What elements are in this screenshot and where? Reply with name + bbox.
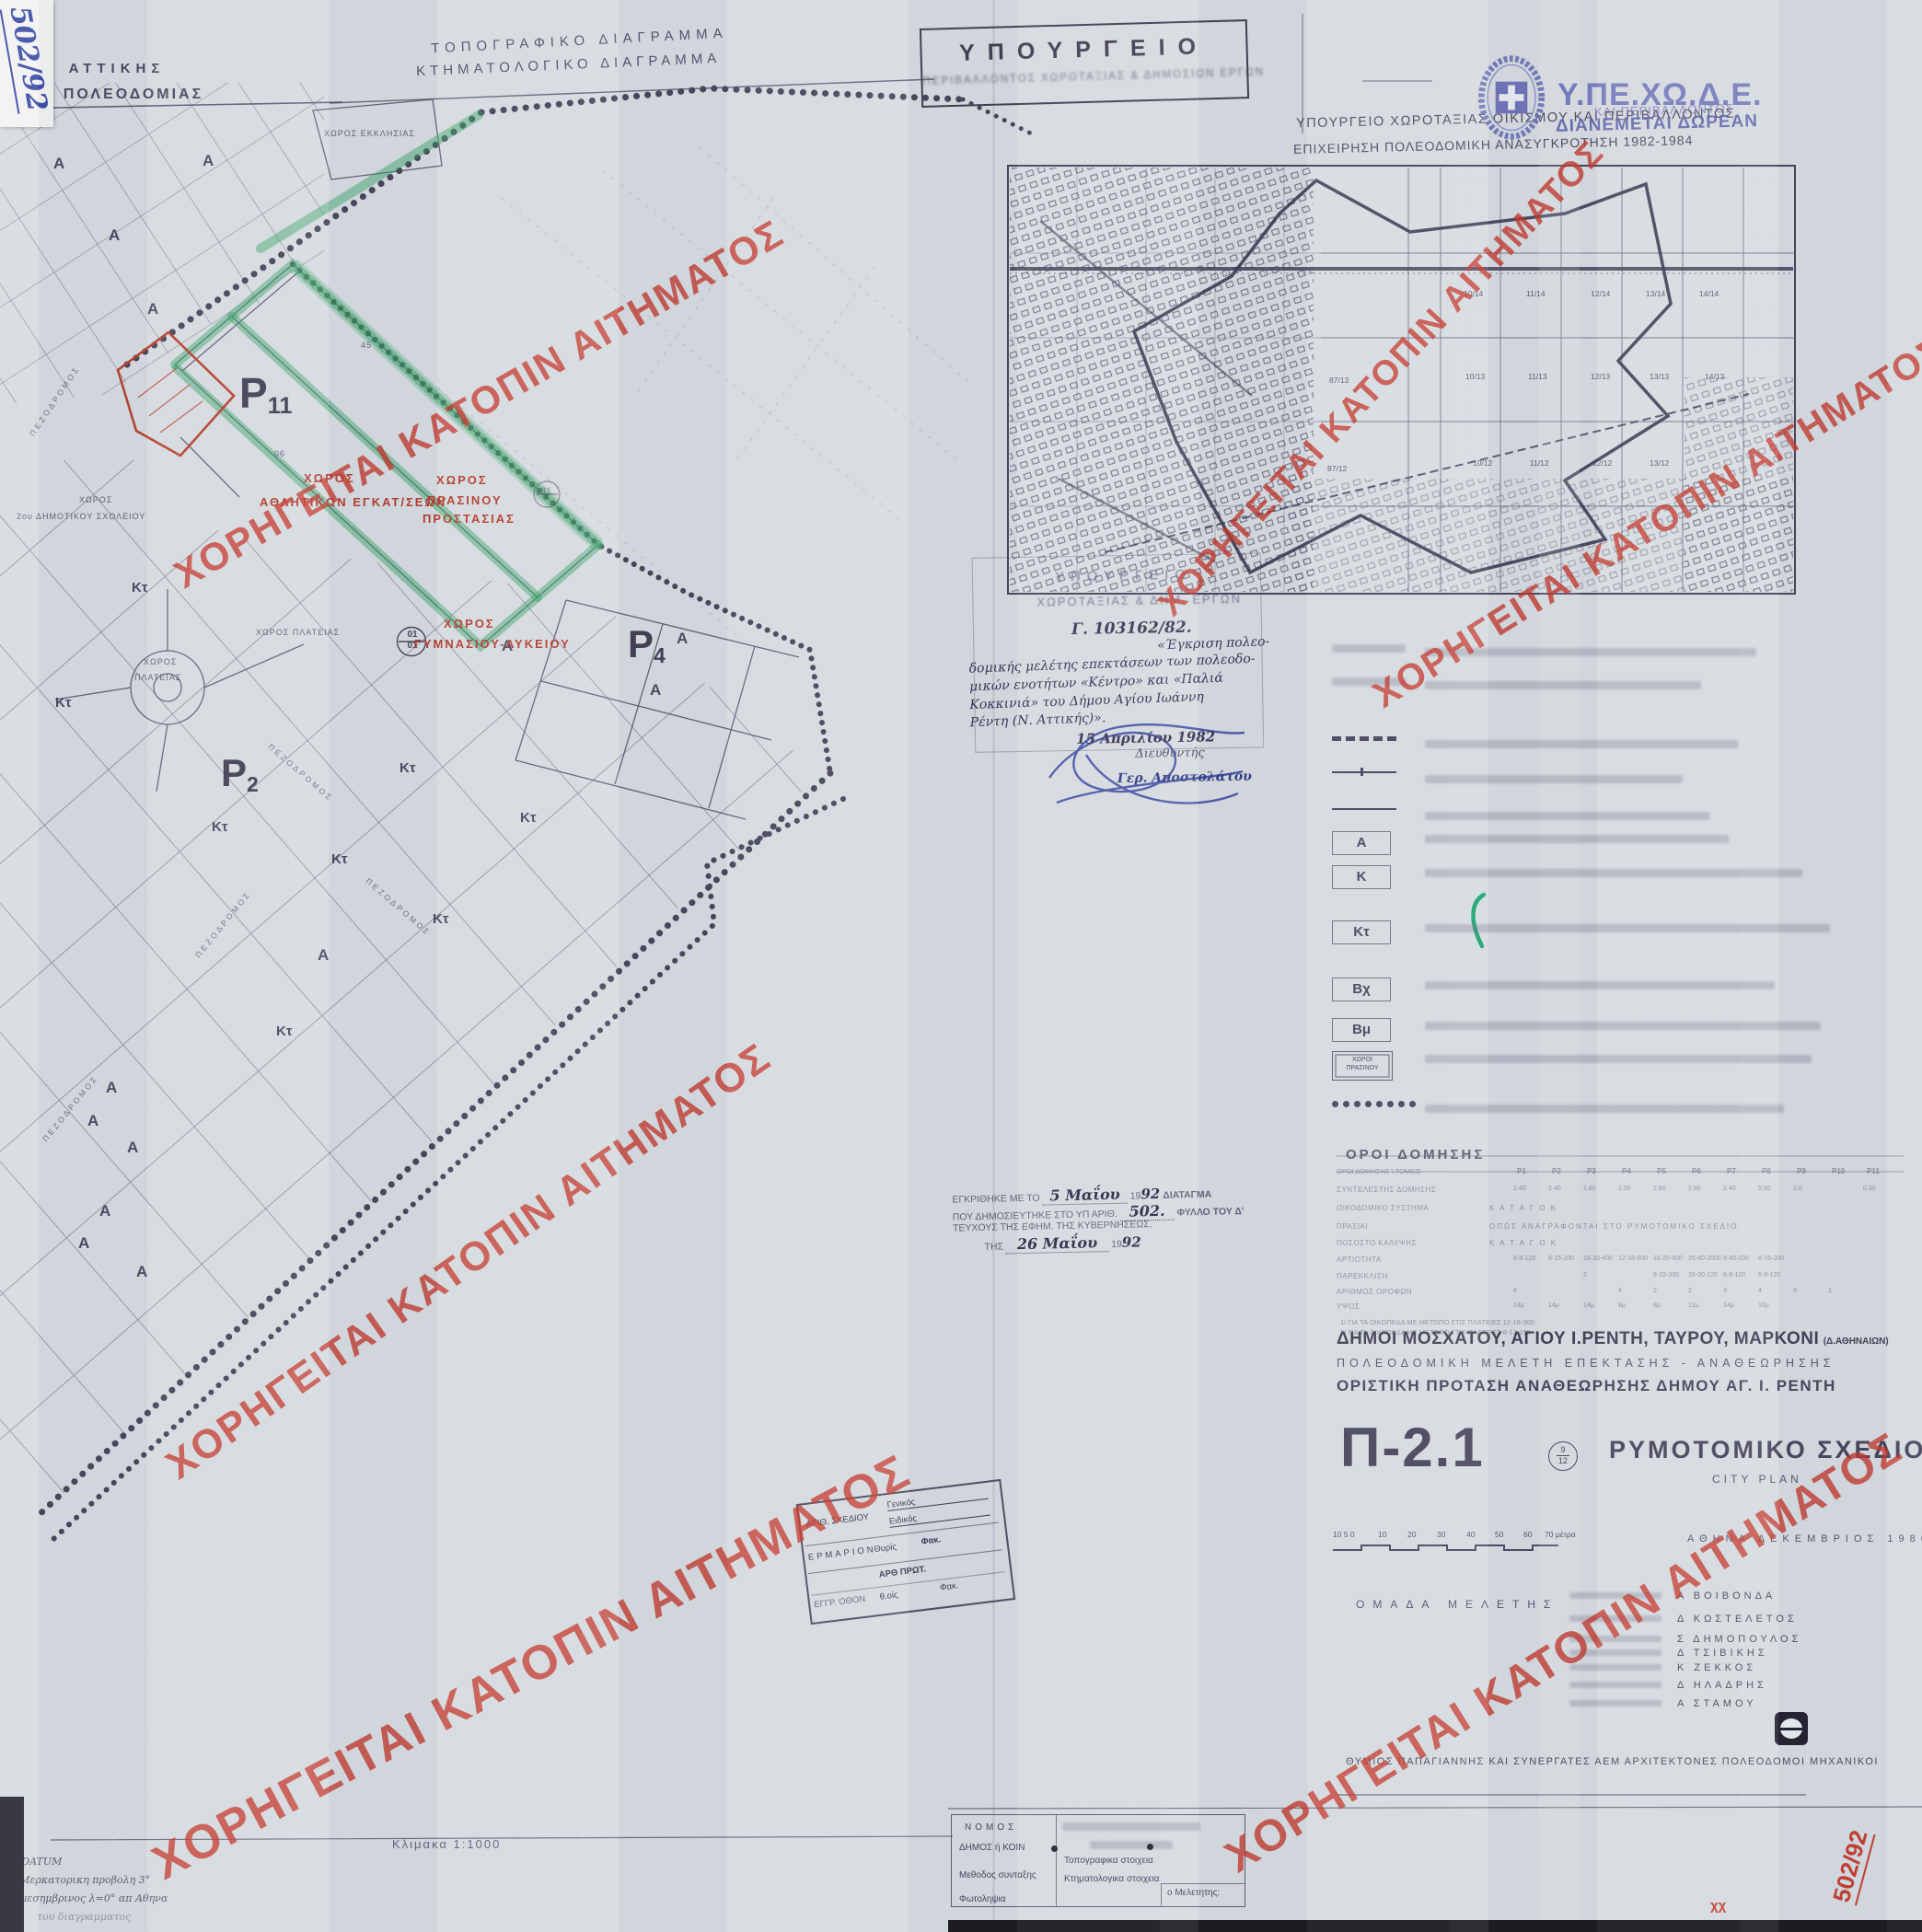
file-number: 502/92 — [0, 4, 53, 114]
legend-symbol-faint — [1332, 644, 1406, 653]
street-grid-southwest — [0, 460, 822, 1517]
gazette-hw-day2: 26 Μαΐου — [1006, 1233, 1109, 1254]
agency-abbrev: Υ.ΠΕ.ΧΩ.Δ.Ε. — [1557, 77, 1762, 113]
firm-logo-icon — [1775, 1712, 1808, 1745]
building-terms-cell: 14μ — [1548, 1302, 1559, 1309]
building-terms-cell: Ρ3 — [1587, 1167, 1596, 1175]
gazette-pre1: ΕΓΚΡΙΘΗΚΕ ΜΕ ΤΟ — [952, 1193, 1039, 1206]
inset-grid-label: 13/12 — [1650, 458, 1669, 468]
map-zone-label: Ρ2 — [221, 751, 259, 795]
sheet-number-top: 9 — [1557, 1446, 1569, 1456]
building-terms-cell: Ρ9 — [1797, 1167, 1806, 1175]
building-terms-cell: 6-8-120 — [1758, 1272, 1780, 1278]
team-member-name: Σ ΔΗΜΟΠΟΥΛΟΣ — [1677, 1634, 1801, 1645]
left-black-edge — [0, 1797, 24, 1932]
building-terms-cell: ΑΡΤΙΟΤΗΤΑ — [1337, 1255, 1382, 1264]
inset-grid-label: 10/13 — [1465, 372, 1485, 381]
scale-tick-label: 60 — [1523, 1530, 1532, 1539]
building-terms-cell: 8μ — [1653, 1302, 1661, 1309]
legend-dash-symbol — [1373, 736, 1383, 741]
legend-dot-symbol — [1409, 1101, 1416, 1107]
building-terms-cell: ΠΟΣΟΣΤΟ ΚΑΛΥΨΗΣ — [1337, 1239, 1417, 1247]
inset-grid-label: 13/14 — [1646, 289, 1665, 298]
scale-tick-label: 70 μέτρα — [1545, 1530, 1576, 1539]
approval-note-stamp: ΥΠΟΥΡΓΕΙΟ ΧΩΡΟΤΑΞΙΑΣ & ΔΗΜ. ΕΡΓΩΝ Γ. 103… — [964, 545, 1281, 822]
building-terms-cell: 2 — [1583, 1272, 1587, 1278]
legend-dash-symbol — [1387, 736, 1396, 741]
building-terms-cell: 6-8-120 — [1723, 1272, 1745, 1278]
red-check-mark: χχ — [1710, 1898, 1726, 1914]
info-dimos: ΔΗΜΟΣ ή ΚΟΙΝ — [959, 1843, 1025, 1853]
legend-line-symbol — [1332, 808, 1396, 810]
legend-description-faint — [1425, 924, 1830, 932]
legend-description-faint — [1425, 1105, 1784, 1113]
building-terms-cell: 16-20-120 — [1688, 1272, 1718, 1278]
building-terms-cell: 3 — [1723, 1288, 1727, 1294]
archive-r2a: Θυρίς — [874, 1542, 897, 1555]
gazette-cent4: 19 — [1111, 1239, 1122, 1250]
scale-tick-label: 10 5 0 — [1333, 1530, 1355, 1539]
map-block-letter: Κτ — [331, 851, 348, 867]
team-title: ΟΜΑΔΑ ΜΕΛΕΤΗΣ — [1356, 1598, 1558, 1611]
archive-r3: ΑΡΘ ΠΡΩΤ. — [878, 1565, 926, 1580]
info-meletitis: ο Μελετητης: — [1167, 1888, 1220, 1898]
map-block-letter: Α — [106, 1079, 117, 1097]
building-terms-cell: 8μ — [1618, 1302, 1626, 1309]
info-ktima: Κτηματολογικα στοιχεια — [1064, 1874, 1159, 1884]
building-terms-cell: 1.80 — [1583, 1186, 1596, 1192]
inset-grid-label: 10/12 — [1473, 458, 1492, 468]
legend-dot-symbol — [1376, 1101, 1383, 1107]
legend-dash-symbol — [1360, 736, 1369, 741]
building-terms-cell: 1.20 — [1618, 1186, 1631, 1192]
ministry-stamp-box: ΥΠΟΥΡΓΕΙΟ ΠΕΡΙΒΑΛΛΟΝΤΟΣ ΧΩΡΟΤΑΞΙΑΣ & ΔΗΜ… — [920, 19, 1249, 108]
scale-tick-label: 30 — [1437, 1530, 1445, 1539]
map-area-label: ΧΩΡΟΣ ΕΚΚΛΗΣΙΑΣ — [324, 129, 415, 138]
legend-description-faint — [1425, 740, 1738, 748]
building-terms-cell: 2.80 — [1653, 1186, 1666, 1192]
legend-box-symbol: Βχ — [1332, 978, 1391, 1001]
signer-name: Γερ. Αποστολάτου — [1117, 769, 1252, 787]
map-area-label: 06 — [274, 449, 285, 458]
building-terms-cell: ΣΥΝΤΕΛΕΣΤΗΣ ΔΟΜΗΣΗΣ — [1337, 1186, 1436, 1194]
legend-tick-symbol — [1332, 771, 1396, 773]
legend-dash-symbol — [1332, 736, 1341, 741]
map-area-label: ΧΩΡΟΣ — [79, 495, 112, 504]
map-red-label: ΓΥΜΝΑΣΙΟΥ-ΛΥΚΕΙΟΥ — [414, 637, 571, 651]
info-nomos: ΝΟΜΟΣ — [965, 1822, 1017, 1833]
legend-dot-symbol — [1365, 1101, 1372, 1107]
gazette-post2: ΦΥΛΛΟ ΤΟΥ Δ' — [1176, 1206, 1244, 1219]
map-scale-note: Κλιμακα 1:1000 — [392, 1837, 501, 1851]
ministry-stamp-line2: ΠΕΡΙΒΑΛΛΟΝΤΟΣ ΧΩΡΟΤΑΞΙΑΣ & ΔΗΜΟΣΙΩΝ ΕΡΓΩ… — [922, 67, 1246, 87]
legend-dot-symbol — [1343, 1101, 1349, 1107]
building-terms-cell: ΟΙΚΟΔΟΜΙΚΟ ΣΥΣΤΗΜΑ — [1337, 1204, 1429, 1212]
building-terms-cell: ΟΠΩΣ ΑΝΑΓΡΑΦΟΝΤΑΙ ΣΤΟ ΡΥΜΟΤΟΜΙΚΟ ΣΧΕΔΙΟ — [1489, 1222, 1738, 1231]
inset-grid-label: 11/13 — [1528, 372, 1547, 381]
building-terms-cell: Ρ2 — [1552, 1167, 1561, 1175]
legend-description-faint — [1425, 775, 1683, 783]
building-terms-cell: 25-40-2000 — [1688, 1255, 1721, 1262]
legend-green-box-symbol: ΧΩΡΟΙΠΡΑΣΙΝΟΥ — [1332, 1051, 1393, 1081]
gazette-hw-yr2: 92 — [1122, 1233, 1141, 1250]
city-plan-sheet: 502/92 ΡΧΙΑ ΑΤΤΙΚΗΣ ΥΝΣΗ ΠΟΛΕΟΔΟΜΙΑΣ ΤΟΠ… — [0, 0, 1922, 1932]
legend-tick-symbol — [1360, 768, 1363, 776]
building-terms-cell: 0.30 — [1863, 1186, 1876, 1192]
building-terms-cell: 2.60 — [1688, 1186, 1701, 1192]
building-terms-cell: 10μ — [1758, 1302, 1769, 1309]
strike-line — [330, 79, 934, 103]
gazette-hw-yr1: 92 — [1140, 1186, 1160, 1202]
building-terms-cell: 1/ ΓΙΑ ΤΑ ΟΙΚΟΠΕΔΑ ΜΕ ΜΕΤΩΠΟ ΣΤΙΣ ΠΛΑΤΕΙ… — [1340, 1318, 1534, 1326]
archive-r2: ΕΡΜΑΡΙΟΝ — [807, 1544, 876, 1563]
map-red-label: ΧΩΡΟΣ — [436, 473, 488, 487]
building-terms-cell: Κ Α Τ Α Γ Ο Κ — [1489, 1239, 1557, 1247]
legend-box-symbol: Α — [1332, 831, 1391, 855]
building-terms-cell: ΟΡΟΙ ΔΟΜΗΣΗΣ \ ΤΟΜΕΙΣ — [1337, 1167, 1421, 1175]
building-terms-cell: Ρ11 — [1867, 1167, 1880, 1175]
building-terms-cell: 2 — [1688, 1288, 1692, 1294]
map-area-label: 2ου ΔΗΜΟΤΙΚΟΥ ΣΧΟΛΕΙΟΥ — [17, 512, 145, 521]
map-block-letter: Κτ — [55, 695, 72, 711]
info-topo: Τοπογραφικα στοιχεια — [1064, 1856, 1153, 1866]
inset-grid-label: 11/14 — [1526, 289, 1546, 298]
building-terms-cell: 14μ — [1583, 1302, 1594, 1309]
legend-box-symbol: Κτ — [1332, 920, 1391, 944]
map-linework — [0, 0, 1922, 1932]
info-methodos: Μεθοδος συνταξης — [959, 1870, 1036, 1880]
proposal-title: ΟΡΙΣΤΙΚΗ ΠΡΟΤΑΣΗ ΑΝΑΘΕΩΡΗΣΗΣ ΔΗΜΟΥ ΑΓ. Ι… — [1337, 1377, 1836, 1395]
building-terms-cell: 8-15-200 — [1653, 1272, 1679, 1278]
building-terms-cell: 5.80 — [1758, 1186, 1771, 1192]
sheet-number-circle: 9 12 — [1548, 1441, 1578, 1471]
info-foto: Φωτοληψια — [959, 1894, 1006, 1904]
map-block-letter: Α — [318, 946, 329, 965]
building-terms-cell: 6-8-120 — [1513, 1255, 1535, 1262]
bottom-black-bar — [948, 1920, 1922, 1932]
plot-circle-faint: 81 — [540, 486, 551, 497]
archive-r4a: θ.οίς — [879, 1590, 898, 1602]
building-terms-cell: Ρ10 — [1832, 1167, 1845, 1175]
map-block-letter: Κτ — [433, 911, 449, 927]
scale-tick-label: 40 — [1466, 1530, 1475, 1539]
map-zone-label-part: 2 — [247, 772, 259, 796]
building-terms-cell: 2.0 — [1793, 1186, 1802, 1192]
inset-grid-label: 12/13 — [1591, 372, 1610, 381]
team-member-name: Δ ΤΣΙΒΙΚΗΣ — [1677, 1648, 1768, 1659]
gazette-pre4: ΤΗΣ — [984, 1241, 1003, 1252]
map-block-letter: Α — [109, 226, 120, 245]
building-terms-cell: 8-15-200 — [1548, 1255, 1574, 1262]
building-terms-cell: 1 — [1828, 1288, 1832, 1294]
map-block-letter: Κτ — [276, 1024, 293, 1039]
sheet-code: Π-2.1 — [1340, 1416, 1485, 1479]
legend-dash-symbol — [1346, 736, 1355, 741]
building-terms-cell: Κ Α Τ Α Γ Ο Κ — [1489, 1204, 1557, 1212]
legend-green-box-text: ΧΩΡΟΙ — [1333, 1056, 1392, 1064]
building-terms-cell: 4 — [1618, 1288, 1622, 1294]
map-block-letter: Α — [677, 630, 688, 648]
legend-dot-symbol — [1398, 1101, 1405, 1107]
datum-note-line: ια Μερκατορικη προβολη 3° — [6, 1874, 150, 1886]
team-member-role-faint — [1569, 1700, 1661, 1706]
map-block-letter: Α — [136, 1263, 147, 1281]
legend-description-faint — [1425, 1055, 1812, 1063]
building-terms-cell: ΠΑΡΕΚΚΛΙΣΗ — [1337, 1272, 1388, 1280]
building-terms-cell: ΑΡΙΘΜΟΣ ΟΡΟΦΩΝ — [1337, 1288, 1412, 1296]
inset-grid-label: 11/12 — [1530, 458, 1549, 468]
protocol-number: Γ. 103162/82. — [1071, 619, 1192, 639]
legend-description-faint — [1425, 981, 1775, 989]
map-zone-label-part: Ρ — [239, 369, 268, 417]
team-member-role-faint — [1569, 1682, 1661, 1688]
map-area-label: 45 — [361, 341, 372, 350]
map-area-label: ΧΩΡΟΣ — [144, 657, 177, 666]
map-area-label: ΧΩΡΟΣ ΠΛΑΤΕΙΑΣ — [256, 628, 340, 637]
building-terms-cell: 8-15-200 — [1758, 1255, 1784, 1262]
legend-description-faint — [1425, 1022, 1821, 1030]
scale-bar — [1333, 1545, 1558, 1550]
map-block-letter: Α — [127, 1139, 138, 1157]
map-zone-label: Ρ4 — [628, 622, 666, 666]
legend-description-faint — [1425, 681, 1701, 689]
building-terms-cell: ΠΡΑΣΙΑΙ — [1337, 1222, 1368, 1231]
map-block-letter: Κτ — [212, 819, 228, 835]
building-terms-cell: Ρ8 — [1762, 1167, 1771, 1175]
gazette-line4: ΤΗΣ 26 Μαΐου 1992 — [984, 1232, 1141, 1254]
gazette-cent1: 19 — [1130, 1190, 1141, 1201]
map-red-label: ΠΡΟΣΤΑΣΙΑΣ — [423, 512, 515, 526]
legend-green-box-text: ΠΡΑΣΙΝΟΥ — [1333, 1064, 1392, 1072]
building-terms-cell: 14μ — [1513, 1302, 1524, 1309]
team-member-name: Δ ΚΩΣΤΕΛΕΤΟΣ — [1677, 1614, 1798, 1625]
map-area-label: ΠΛΑΤΕΙΑΣ — [134, 673, 181, 682]
inset-grid-label: 87/12 — [1327, 464, 1347, 473]
datum-note-line: του διαγραμματος — [37, 1911, 131, 1923]
coat-of-arms-icon — [1471, 52, 1552, 144]
inset-grid-label: 13/13 — [1650, 372, 1669, 381]
map-block-letter: Α — [650, 681, 661, 700]
archive-r4b: Φακ. — [939, 1580, 959, 1592]
building-terms-cell: 2.40 — [1548, 1186, 1561, 1192]
building-terms-cell: 14μ — [1723, 1302, 1734, 1309]
ministry-stamp-line1: ΥΠΟΥΡΓΕΙΟ — [921, 32, 1246, 68]
building-terms-cell: 11μ — [1688, 1302, 1698, 1309]
map-zone-label: Ρ11 — [239, 368, 292, 418]
team-member-name: Α ΣΤΑΜΟΥ — [1677, 1698, 1757, 1709]
map-zone-label-part: Ρ — [628, 622, 654, 665]
map-block-letter: Α — [53, 155, 64, 173]
building-terms-cell: 12-18-600 — [1618, 1255, 1648, 1262]
map-block-letter: Α — [99, 1202, 110, 1221]
team-member-name: Κ ΖΕΚΚΟΣ — [1677, 1662, 1756, 1673]
corner-file-card: 502/92 — [0, 0, 53, 127]
map-block-letter: Α — [78, 1234, 89, 1253]
building-terms-cell: 2/ ΓΙΑ ΤΑ ΟΙΚΟΠΕΔΑ ΜΕ ΜΕΤΩΠΟ ΣΤΙΣ ΠΛΑΤΕΙ… — [1340, 1328, 1531, 1336]
legend-description-faint — [1425, 835, 1729, 843]
archive-r2b: Φακ. — [920, 1534, 942, 1547]
scale-tick-label: 50 — [1495, 1530, 1503, 1539]
map-block-letter: Α — [147, 300, 158, 318]
legend-box-symbol: Βμ — [1332, 1018, 1391, 1042]
sheet-fold — [992, 0, 995, 1932]
inset-grid-label: 12/12 — [1592, 458, 1612, 468]
building-terms-cell: 2.40 — [1513, 1186, 1526, 1192]
scale-tick-label: 20 — [1407, 1530, 1416, 1539]
map-zone-label-part: Ρ — [221, 751, 247, 794]
approval-date: 15 Απριλίου 1982 — [1076, 728, 1215, 747]
building-terms-cell: 16-20-400 — [1583, 1255, 1613, 1262]
inset-grid-label: 12/14 — [1591, 289, 1610, 298]
building-terms-cell: 8-40-200 — [1723, 1255, 1749, 1262]
datum-note-line: ος μεσημβρινος λ=0° απ Αθηνα — [6, 1892, 168, 1904]
municipalities-suffix: (Δ.ΑΘΗΝΑΙΩΝ) — [1824, 1336, 1889, 1347]
gazette-post1: ΔΙΑΤΑΓΜΑ — [1163, 1189, 1211, 1201]
sheet-info-table: ΝΟΜΟΣ ΔΗΜΟΣ ή ΚΟΙΝ Μεθοδος συνταξης Φωτο… — [951, 1814, 1245, 1907]
building-terms-cell: Ρ7 — [1727, 1167, 1736, 1175]
building-terms-table: ΟΡΟΙ ΔΟΜΗΣΗΣ \ ΤΟΜΕΙΣΡ1Ρ2Ρ3Ρ4Ρ5Ρ6Ρ7Ρ8Ρ9Ρ… — [1333, 1147, 1905, 1336]
map-red-label: ΧΩΡΟΣ — [444, 617, 495, 631]
legend-description-faint — [1425, 812, 1710, 820]
map-block-letter: Α — [87, 1112, 98, 1130]
inset-grid-label: 87/13 — [1329, 376, 1349, 385]
scale-tick-label: 10 — [1378, 1530, 1386, 1539]
legend-dot-symbol — [1387, 1101, 1394, 1107]
legend-box-symbol: Κ — [1332, 865, 1391, 889]
building-terms-cell: Ρ4 — [1622, 1167, 1631, 1175]
building-terms-cell: 16-20-400 — [1653, 1255, 1683, 1262]
legend-dot-symbol — [1332, 1101, 1338, 1107]
map-block-letter: Κτ — [520, 810, 537, 826]
building-terms-cell: ΥΨΟΣ — [1337, 1302, 1360, 1311]
sheet-number-bottom: 12 — [1549, 1457, 1577, 1465]
archive-r4: ΕΓΓΡ. ΟΘΟΝ — [814, 1594, 866, 1611]
map-block-letter: Α — [203, 152, 214, 170]
building-terms-cell: 4 — [1513, 1288, 1517, 1294]
map-block-letter: Κτ — [132, 580, 148, 596]
team-member-name: Δ ΗΛΑΔΡΗΣ — [1677, 1680, 1767, 1691]
map-zone-label-part: 4 — [654, 643, 666, 667]
map-block-letter: Κτ — [399, 760, 416, 776]
map-zone-label-part: 11 — [268, 393, 293, 419]
signer-role: Διευθυντής — [1135, 746, 1205, 760]
building-terms-cell: Ρ6 — [1692, 1167, 1701, 1175]
green-pen-mark — [1473, 895, 1484, 946]
map-red-label: ΠΡΑΣΙΝΟΥ — [427, 493, 503, 507]
building-terms-cell: 2.40 — [1723, 1186, 1736, 1192]
building-terms-cell: Ρ5 — [1657, 1167, 1666, 1175]
legend-description-faint — [1425, 869, 1802, 877]
legend-dot-symbol — [1354, 1101, 1360, 1107]
building-terms-cell: Ρ1 — [1517, 1167, 1526, 1175]
building-terms-cell: 2 — [1653, 1288, 1657, 1294]
inset-grid-label: 14/13 — [1705, 372, 1724, 381]
inset-grid-label: 14/14 — [1699, 289, 1719, 298]
building-terms-cell: 4 — [1758, 1288, 1762, 1294]
study-title: ΠΟΛΕΟΔΟΜΙΚΗ ΜΕΛΕΤΗ ΕΠΕΚΤΑΣΗΣ - ΑΝΑΘΕΩΡΗΣ… — [1337, 1357, 1835, 1370]
building-terms-cell: 3 — [1793, 1288, 1797, 1294]
